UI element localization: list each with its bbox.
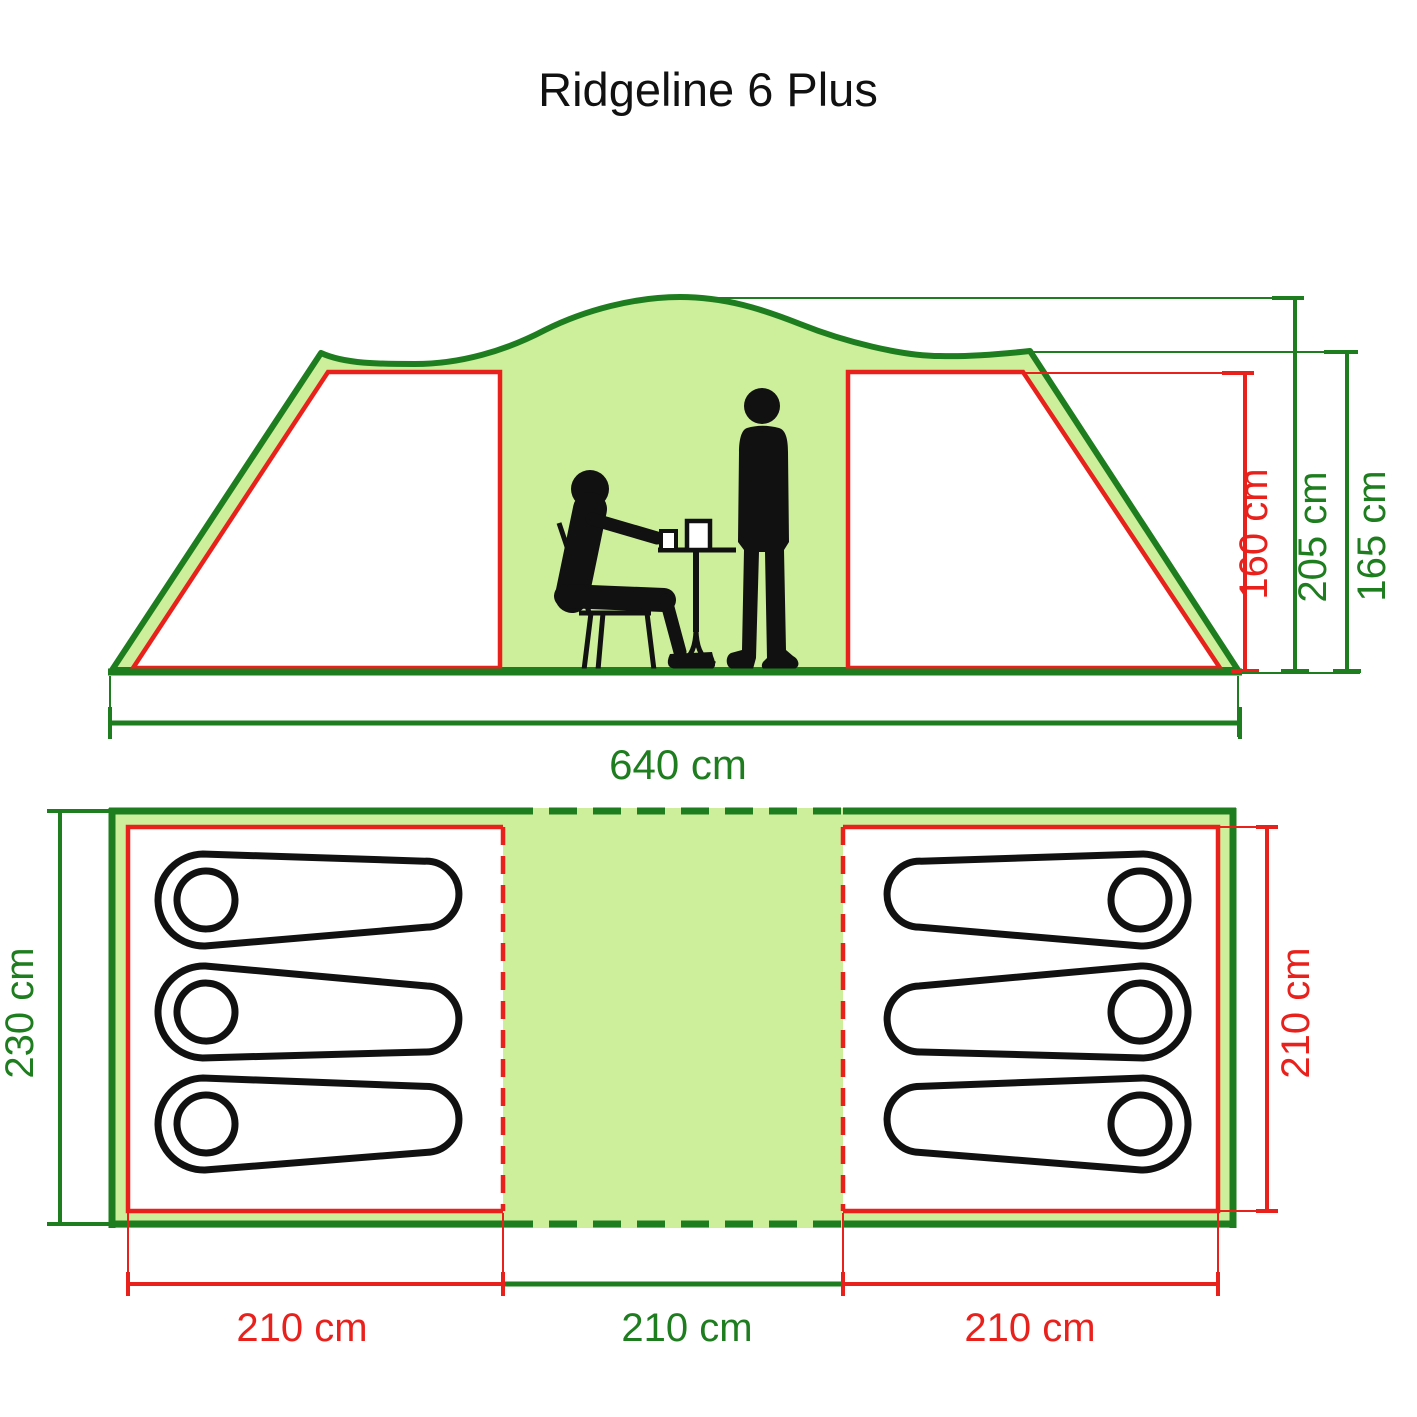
dim-640-label: 640 cm [609,741,747,788]
elevation-view: 160 cm 205 cm 165 cm 640 cm [108,297,1394,788]
floor-plan-view: 230 cm 210 cm 210 cm 210 cm 210 cm [0,808,1318,1350]
tent-diagram-page: Ridgeline 6 Plus [0,0,1417,1417]
dim-230-line [47,811,110,1224]
standing-person-head [744,388,780,424]
dim-210-bottom-right-label: 210 cm [964,1306,1095,1350]
tent-diagram: Ridgeline 6 Plus [0,0,1417,1417]
diagram-title: Ridgeline 6 Plus [538,63,878,116]
right-bedroom-cutout [848,372,1220,668]
mug-icon [687,521,710,550]
dim-210-bottom-center-label: 210 cm [621,1306,752,1350]
left-bedroom [128,827,503,1211]
dim-165-label: 165 cm [1350,470,1394,601]
depth-dimension: 230 cm [0,811,110,1224]
bottom-width-dimensions: 210 cm 210 cm 210 cm [128,1213,1218,1350]
width-dimension: 640 cm [110,676,1240,788]
dim-230-label: 230 cm [0,947,42,1078]
right-bedroom [843,827,1218,1211]
cup-icon [661,531,676,550]
seated-person-thigh [566,596,664,600]
sleeping-bag-icon [157,1073,460,1171]
dim-205-label: 205 cm [1291,471,1335,602]
dim-210-right-label: 210 cm [1274,947,1318,1078]
dim-640-extension [110,676,1238,737]
dim-160-label: 160 cm [1232,468,1276,599]
left-bedroom-cutout [133,372,500,668]
sleeping-bag-icon [886,1073,1189,1171]
dim-210-bottom-left-label: 210 cm [236,1306,367,1350]
